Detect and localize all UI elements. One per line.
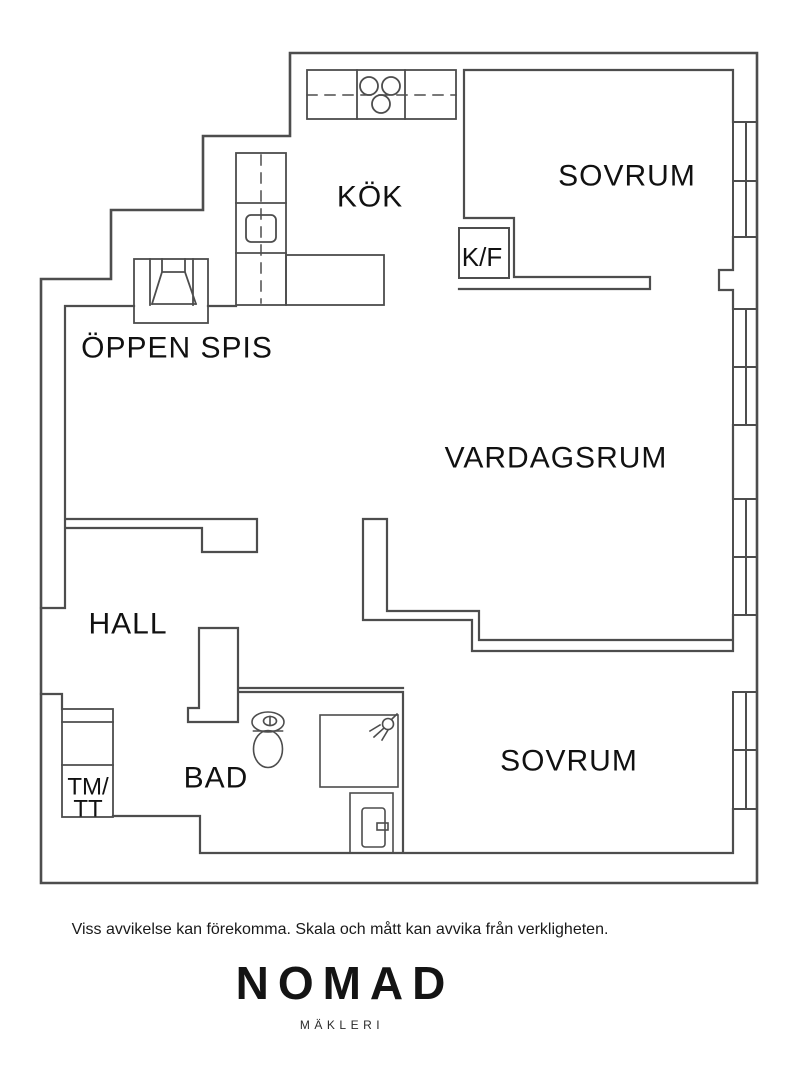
room-label-bad: BAD	[184, 762, 249, 795]
room-label-hall: HALL	[88, 608, 167, 641]
kitchen-counter-right	[286, 255, 384, 305]
window-sovrum-top	[733, 122, 757, 237]
shower-icon	[320, 714, 398, 787]
stove-icon	[360, 77, 400, 113]
disclaimer-text: Viss avvikelse kan förekomma. Skala och …	[0, 921, 680, 939]
window-vardagsrum-upper	[733, 309, 757, 425]
brand-subtitle: MÄKLERI	[0, 1018, 684, 1032]
fireplace-icon	[134, 259, 208, 323]
kitchen-counter-left	[236, 153, 286, 305]
label-kf: K/F	[462, 242, 502, 272]
room-label-sovrum-bottom: SOVRUM	[500, 745, 638, 778]
brand-logo: NOMAD	[0, 956, 690, 1010]
washbasin-icon	[350, 793, 393, 853]
room-label-oppen-spis: ÖPPEN SPIS	[81, 332, 273, 365]
room-label-sovrum-top: SOVRUM	[558, 160, 696, 193]
toilet-icon	[252, 712, 284, 768]
window-sovrum-bottom	[733, 692, 757, 809]
label-tmtt-line2: TT	[73, 796, 103, 823]
window-vardagsrum-lower	[733, 499, 757, 615]
floor-plan-page: KÖK SOVRUM VARDAGSRUM ÖPPEN SPIS HALL BA…	[0, 0, 800, 1085]
room-label-vardagsrum: VARDAGSRUM	[445, 442, 668, 475]
room-label-kok: KÖK	[337, 181, 403, 214]
